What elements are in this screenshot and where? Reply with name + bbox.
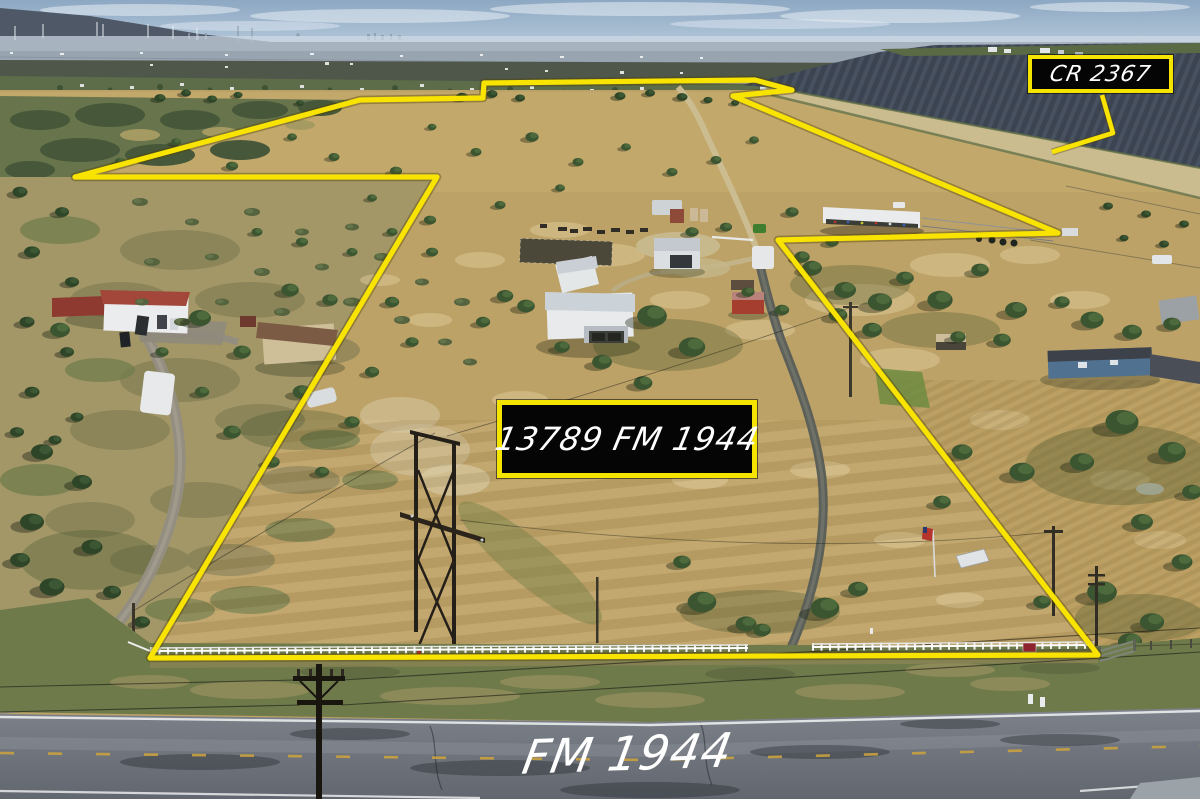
utility-pole (849, 302, 852, 397)
property-address-sign: 13789 FM 1944 (497, 400, 757, 478)
tractor (753, 224, 766, 233)
white-camper (1152, 255, 1172, 264)
aerial-property-photo: CR 2367 13789 FM 1944 FM 1944 (0, 0, 1200, 799)
white-trailer (1062, 228, 1078, 236)
mower (240, 316, 256, 327)
cross-road-label: CR 2367 (1048, 62, 1154, 87)
portable-unit (690, 208, 698, 221)
front-road-label: FM 1944 (519, 723, 738, 786)
posted-sign (1023, 643, 1036, 652)
property-address-label: 13789 FM 1944 (492, 420, 763, 458)
cross-road-sign: CR 2367 (1028, 55, 1173, 93)
metal-shop (649, 238, 705, 278)
front-road-name: FM 1944 (497, 711, 759, 796)
utility-pole (1095, 566, 1098, 650)
portable-unit (700, 209, 708, 222)
red-shed (670, 209, 684, 223)
rv-trailer (752, 246, 774, 269)
small-pole (596, 577, 599, 643)
mailbox (1040, 697, 1045, 707)
motorhome (140, 370, 176, 415)
mailbox (1028, 694, 1033, 704)
